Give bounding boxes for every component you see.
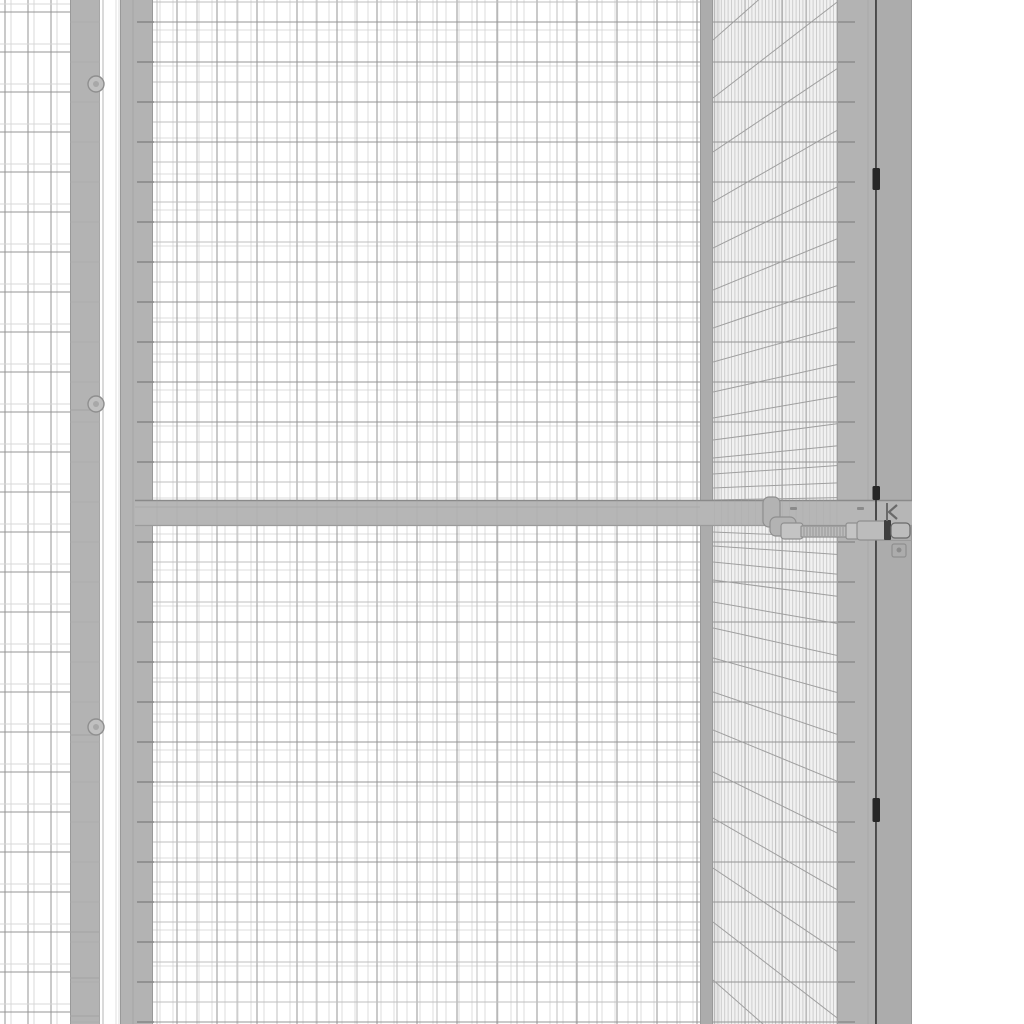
cage-product-photo <box>0 0 1024 1024</box>
product-photo-stage <box>0 0 1024 1024</box>
left-corner-post <box>70 0 119 1024</box>
rail-screw <box>857 507 864 510</box>
latch-sleeve <box>857 521 887 540</box>
rail-screw <box>790 507 797 510</box>
left-side-mesh <box>0 0 70 1024</box>
bolt-center <box>93 401 99 407</box>
hinge <box>873 168 881 190</box>
latch-dark-band <box>884 520 891 540</box>
post-body <box>70 0 100 1024</box>
hinge <box>873 798 881 822</box>
latch-collar <box>781 523 803 539</box>
latch-end-cap <box>891 523 910 538</box>
latch-pivot <box>873 486 881 500</box>
latch-catch-screw <box>897 548 902 553</box>
bolt-center <box>93 724 99 730</box>
bolt-center <box>93 81 99 87</box>
